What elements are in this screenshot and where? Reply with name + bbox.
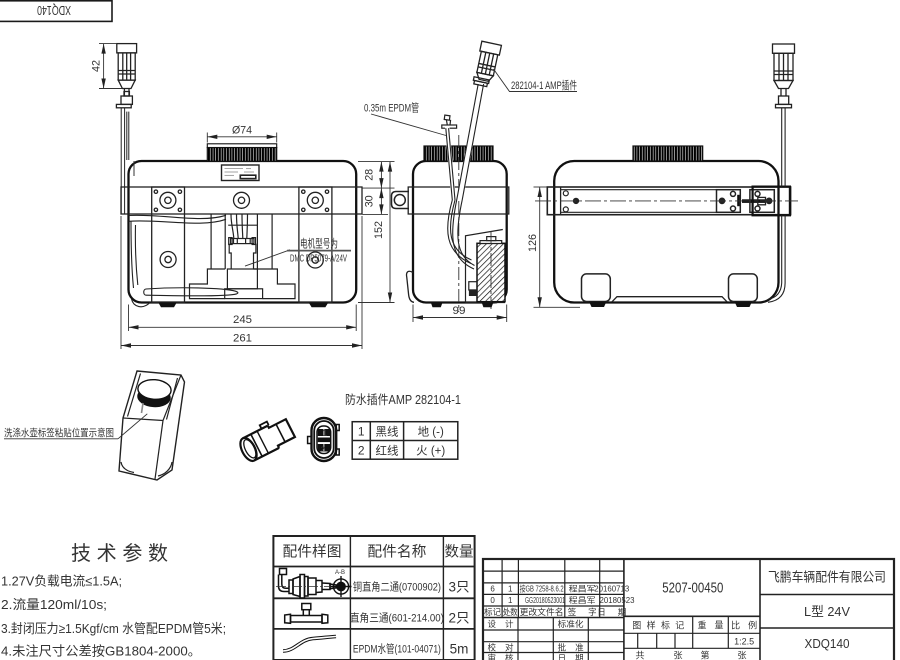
svg-text:5207-00450: 5207-00450 [662,580,723,597]
svg-text:1: 1 [322,428,327,438]
svg-text:飞鹏车辆配件有限公司: 飞鹏车辆配件有限公司 [768,570,886,585]
svg-text:2.流量120ml/10s;: 2.流量120ml/10s; [1,597,107,612]
svg-text:XDQ140: XDQ140 [37,3,71,18]
svg-text:批 准: 批 准 [558,643,584,653]
svg-text:GG20180523001: GG20180523001 [525,596,565,605]
svg-text:图 样 标 记: 图 样 标 记 [632,620,684,631]
svg-text:张: 张 [737,651,746,660]
svg-text:245: 245 [233,314,252,326]
svg-text:30: 30 [364,195,376,207]
svg-text:3只: 3只 [448,580,469,595]
svg-text:2只: 2只 [448,611,469,626]
svg-text:152: 152 [373,221,385,239]
svg-text:洗涤水壶标签粘贴位置示意图: 洗涤水壶标签粘贴位置示意图 [4,427,114,440]
svg-text:0: 0 [490,596,495,605]
svg-text:配件样图: 配件样图 [283,544,342,561]
svg-text:数量: 数量 [445,544,474,561]
svg-text:地 (-): 地 (-) [418,426,444,439]
svg-text:6: 6 [490,585,495,594]
svg-text:第: 第 [700,650,709,660]
svg-text:设 计: 设 计 [488,619,514,629]
svg-text:1:2.5: 1:2.5 [734,637,754,647]
svg-text:程昌军: 程昌军 [569,585,596,594]
svg-text:黑线: 黑线 [376,425,399,439]
svg-text:5m: 5m [450,642,469,657]
svg-text:审 核: 审 核 [488,653,514,660]
svg-text:1: 1 [358,425,365,439]
svg-text:42: 42 [91,60,103,72]
svg-text:1: 1 [508,585,513,594]
svg-text:282104-1 AMP插件: 282104-1 AMP插件 [511,78,577,92]
svg-text:标记: 标记 [484,607,501,617]
svg-text:2: 2 [358,443,365,457]
svg-text:火 (+): 火 (+) [416,444,445,457]
svg-text:签 字: 签 字 [568,607,597,617]
svg-text:20160713: 20160713 [594,585,630,594]
svg-text:日 期: 日 期 [558,653,584,660]
svg-text:比 例: 比 例 [731,620,757,631]
svg-text:L型 24V: L型 24V [804,604,850,619]
svg-text:4.未注尺寸公差按GB1804-2000。: 4.未注尺寸公差按GB1804-2000。 [1,644,201,659]
svg-text:1: 1 [508,596,513,605]
svg-text:DMC DP5079-A/24V: DMC DP5079-A/24V [290,253,347,264]
svg-text:2: 2 [321,445,325,454]
svg-text:共: 共 [635,651,644,660]
svg-text:标准化: 标准化 [558,619,584,629]
svg-text:261: 261 [233,333,252,345]
svg-text:20180523: 20180523 [600,596,636,605]
svg-text:126: 126 [527,234,539,252]
svg-text:程昌军: 程昌军 [569,596,596,605]
svg-text:XDQ140: XDQ140 [805,636,850,651]
svg-text:99: 99 [453,305,466,317]
svg-text:电机型号为: 电机型号为 [300,237,338,251]
svg-text:Ø74: Ø74 [232,125,252,137]
svg-text:EPDM水管(101-04071): EPDM水管(101-04071) [353,642,441,656]
svg-text:铜直角二通(0700902): 铜直角二通(0700902) [353,580,441,594]
svg-text:红线: 红线 [376,443,399,457]
svg-text:处数: 处数 [503,607,518,617]
svg-text:更改文件名: 更改文件名 [520,607,564,617]
svg-text:1.27V负载电流≤1.5A;: 1.27V负载电流≤1.5A; [1,574,122,589]
svg-text:直角三通(601-214.00): 直角三通(601-214.00) [350,611,444,625]
svg-text:0.35m EPDM管: 0.35m EPDM管 [364,101,419,115]
svg-text:28: 28 [364,169,376,181]
svg-text:防水插件AMP 282104-1: 防水插件AMP 282104-1 [345,392,461,407]
svg-text:技 术 参 数: 技 术 参 数 [71,542,168,565]
svg-text:3.封闭压力≥1.5Kgf/cm 水管配EPDM管5米;: 3.封闭压力≥1.5Kgf/cm 水管配EPDM管5米; [1,621,226,636]
svg-text:按GB 7258-8.6.2: 按GB 7258-8.6.2 [520,584,564,594]
svg-text:A-B: A-B [335,570,345,576]
svg-text:日 期: 日 期 [597,607,626,617]
svg-text:重 量: 重 量 [698,620,724,631]
svg-text:校 对: 校 对 [488,643,514,653]
svg-text:配件名称: 配件名称 [367,544,426,561]
svg-text:张: 张 [673,651,682,660]
